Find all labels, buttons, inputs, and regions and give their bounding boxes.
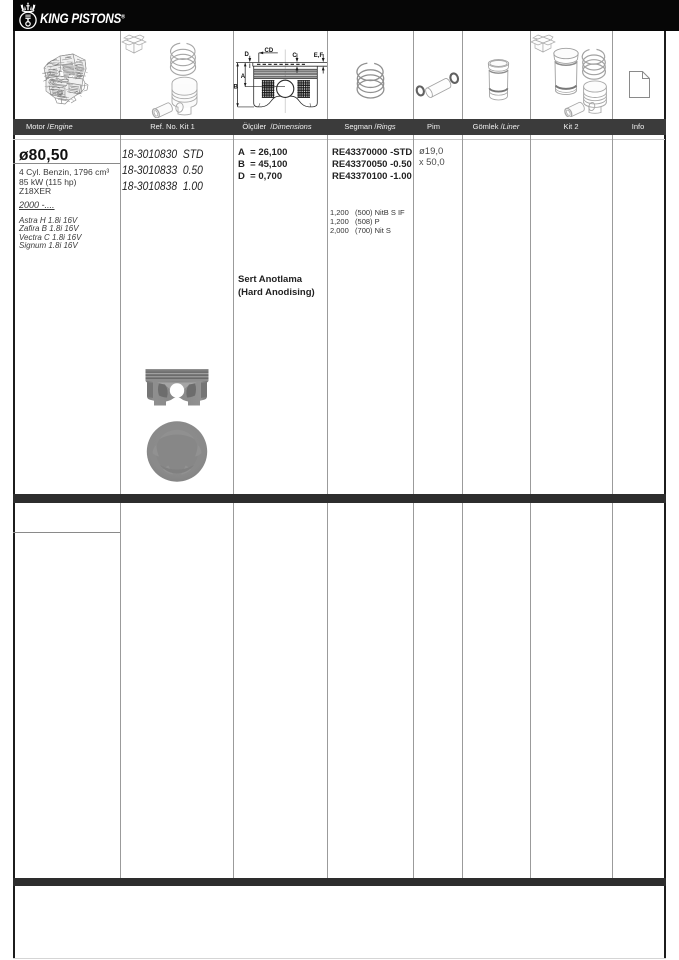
svg-text:E,F: E,F <box>314 53 324 59</box>
svg-text:C: C <box>292 53 297 59</box>
svg-text:CD: CD <box>265 48 274 54</box>
svg-text:B: B <box>234 84 239 90</box>
svg-text:A: A <box>241 74 246 80</box>
svg-text:D: D <box>245 52 250 58</box>
